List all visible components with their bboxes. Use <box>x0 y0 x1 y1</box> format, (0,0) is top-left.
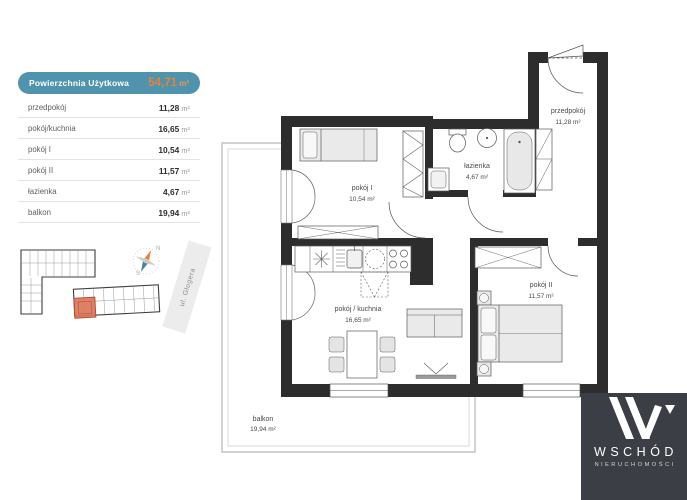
bathtub-icon <box>504 129 535 193</box>
nightstand-bottom <box>477 362 491 376</box>
balcony-door-kitchen <box>281 265 315 320</box>
living-room-window <box>330 384 388 397</box>
building-outline-b <box>73 285 159 318</box>
dishwasher-planned <box>361 272 388 297</box>
hood-icon <box>313 251 330 268</box>
room1-door <box>389 202 425 238</box>
room-label-bathroom: łazienka <box>464 163 490 170</box>
logo-subtitle-text: NIERUCHOMOŚCI <box>594 462 675 468</box>
balcony-door-room1 <box>281 170 315 223</box>
room-area-bathroom: 4,67 m² <box>466 174 489 181</box>
wardrobe-hall <box>536 129 552 190</box>
dining-table <box>329 331 395 378</box>
highlighted-unit <box>74 297 96 318</box>
room-label-room1: pokój I <box>352 185 373 192</box>
compass-north-label: N <box>156 246 160 252</box>
room-area-balcony: 19,94 m² <box>250 426 276 433</box>
sink-icon <box>478 129 497 148</box>
nightstand-top <box>477 291 491 305</box>
room-label-room2: pokój II <box>530 282 553 289</box>
room-area-hall: 11,28 m² <box>555 119 581 126</box>
wardrobe-room1 <box>403 131 423 197</box>
logo-brand-text: WSCHÓD <box>594 445 678 459</box>
toilet-icon <box>449 129 466 152</box>
floorplan-page: { "colors": { "accent_teal": "#4f94ac", … <box>0 0 687 500</box>
dresser-room1 <box>298 226 378 239</box>
room-area-room1: 10,54 m² <box>349 196 375 203</box>
bed-room1 <box>300 129 377 161</box>
double-bed-room2 <box>478 305 562 362</box>
compass-icon: N S <box>131 245 161 277</box>
agency-logo: WSCHÓD NIERUCHOMOŚCI <box>581 393 687 500</box>
washing-machine-icon <box>428 168 449 191</box>
bedroom-window <box>523 384 580 397</box>
tv-icon <box>416 363 456 379</box>
site-plan: N S ul. Głogera <box>21 240 212 333</box>
kitchen-counter <box>295 246 411 272</box>
street-band: ul. Głogera <box>162 240 211 333</box>
entrance-door <box>548 45 583 93</box>
compass-south-label: S <box>136 271 140 277</box>
logo-w-mark <box>581 393 687 443</box>
room-area-room2: 11,57 m² <box>528 293 554 300</box>
room-label-balcony: balkon <box>253 416 274 423</box>
wardrobe-room2 <box>475 247 541 268</box>
bathroom-door <box>468 197 503 232</box>
room-label-hall: przedpokój <box>551 108 586 115</box>
sofa-icon <box>407 309 462 337</box>
room-area-livingkitchen: 16,65 m² <box>345 317 371 324</box>
room-label-livingkitchen: pokój / kuchnia <box>335 306 382 313</box>
bedroom-door <box>548 246 578 276</box>
